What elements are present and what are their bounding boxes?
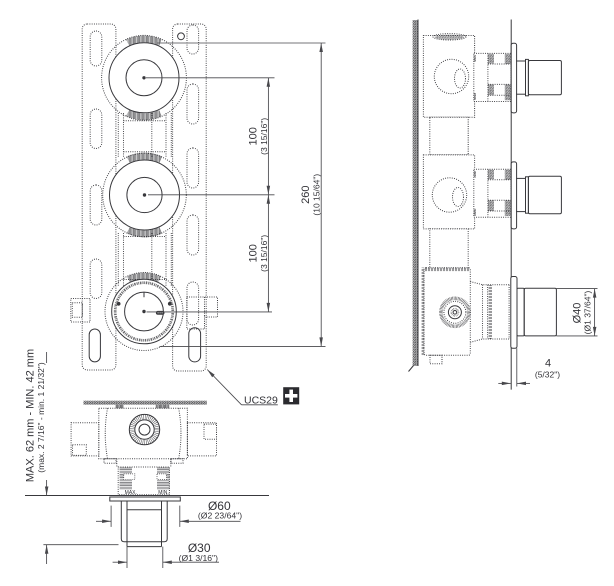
- svg-text:100: 100: [247, 244, 259, 262]
- svg-text:(max. 2 7/16" - min. 1 21/32"): (max. 2 7/16" - min. 1 21/32"): [36, 362, 46, 473]
- svg-text:UCS29: UCS29: [244, 394, 278, 406]
- svg-text:Ø40: Ø40: [571, 303, 583, 324]
- svg-text:(Ø1 37/64"): (Ø1 37/64"): [583, 291, 593, 335]
- svg-text:(10 15/64"): (10 15/64"): [312, 174, 322, 216]
- svg-text:(3 15/16"): (3 15/16"): [259, 235, 269, 272]
- svg-text:MAX. 62 mm - MIN. 42 mm: MAX. 62 mm - MIN. 42 mm: [25, 349, 37, 482]
- svg-text:(Ø1 3/16"): (Ø1 3/16"): [179, 553, 218, 563]
- svg-text:(3 15/16"): (3 15/16"): [259, 118, 269, 155]
- svg-text:100: 100: [247, 127, 259, 145]
- svg-text:(5/32"): (5/32"): [535, 370, 560, 380]
- svg-text:(Ø2 23/64"): (Ø2 23/64"): [198, 511, 242, 521]
- svg-text:4: 4: [545, 358, 551, 370]
- svg-text:260: 260: [300, 186, 312, 204]
